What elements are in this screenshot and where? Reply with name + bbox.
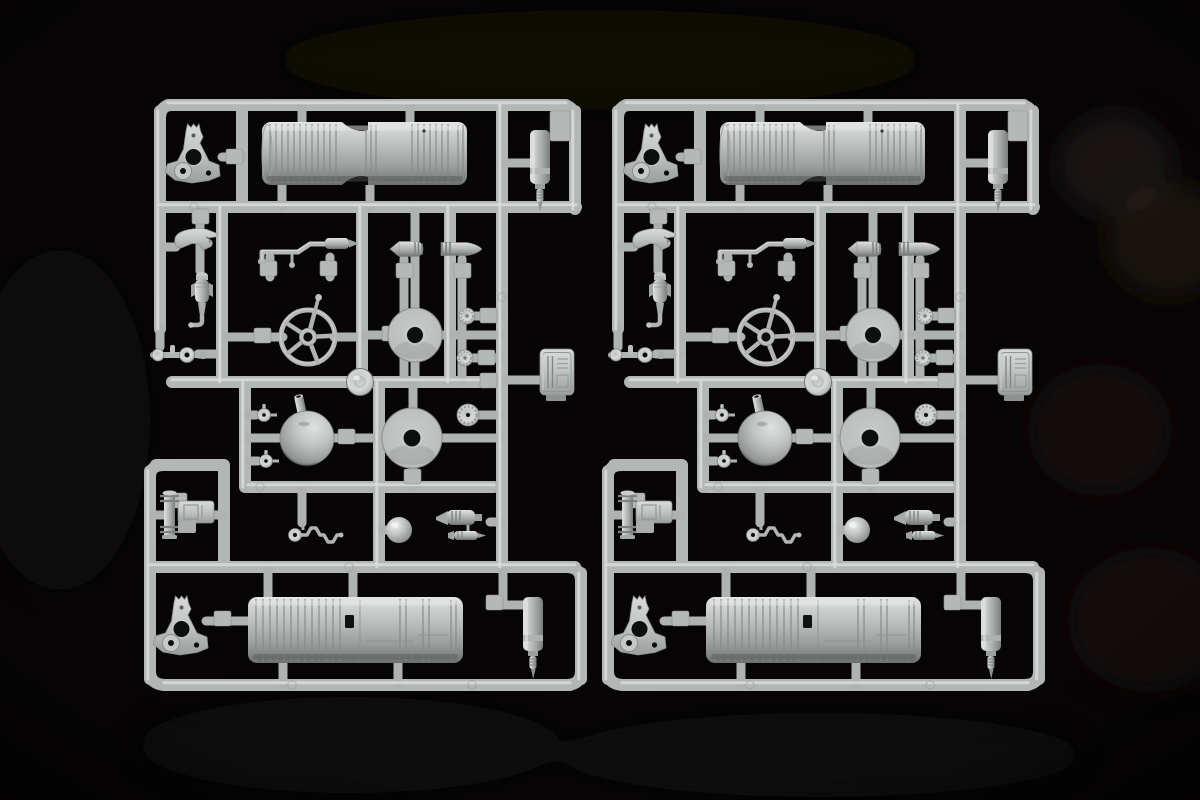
photo-stage bbox=[0, 0, 1200, 800]
sprue-photo bbox=[0, 0, 1200, 800]
vignette-overlay bbox=[0, 0, 1200, 800]
